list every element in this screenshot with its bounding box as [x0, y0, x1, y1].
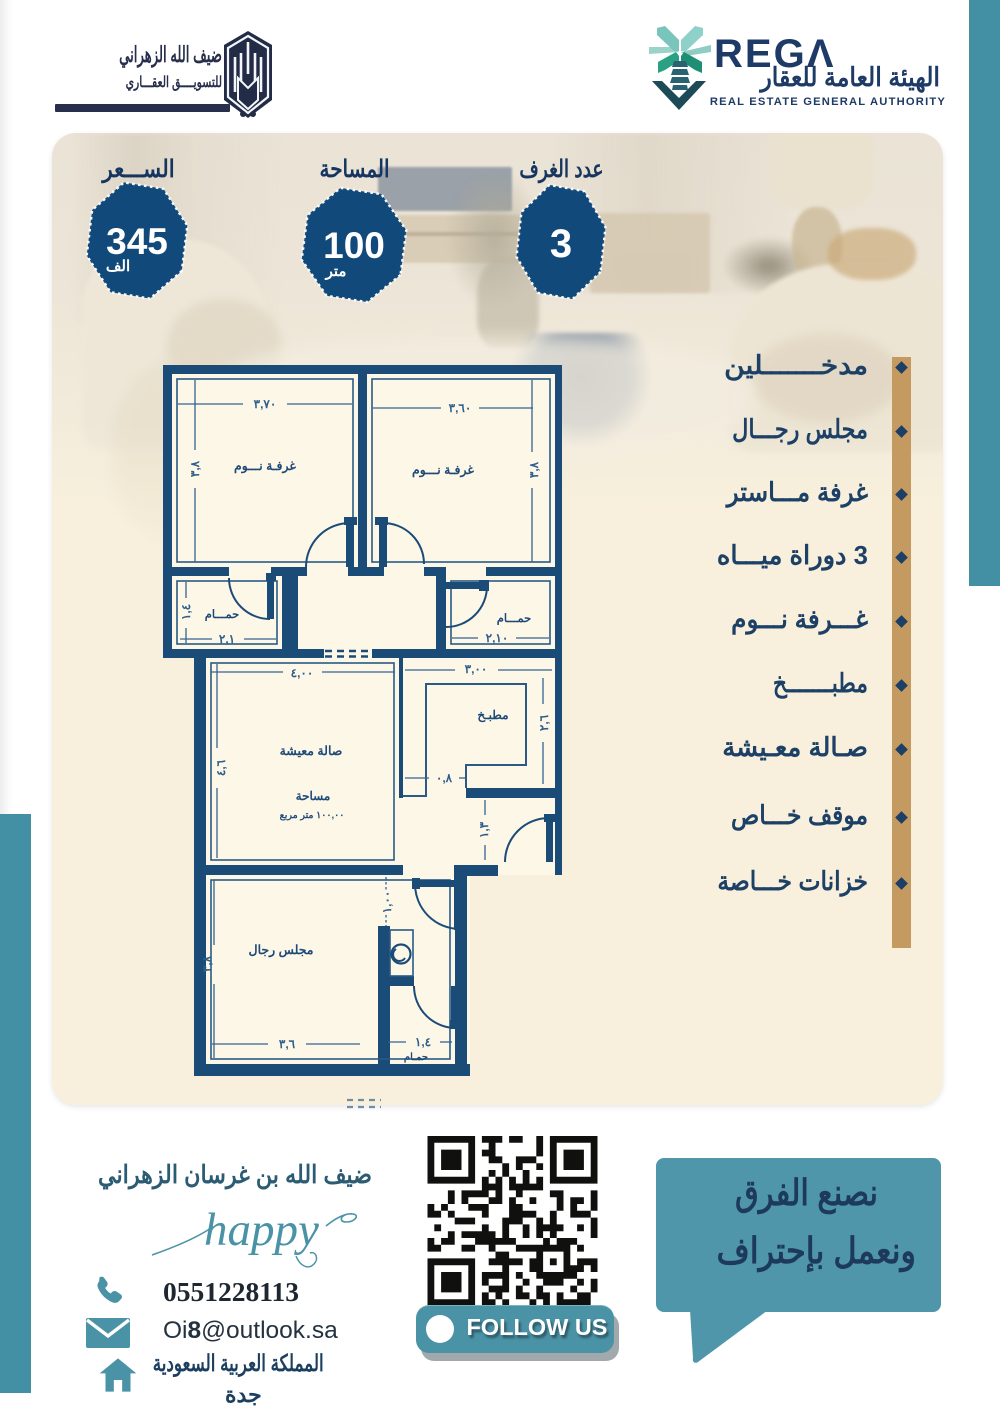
svg-text:١,٤: ١,٤ [179, 604, 193, 620]
svg-text:happy: happy [204, 1204, 319, 1256]
svg-text:٠,٨: ٠,٨ [436, 771, 453, 785]
svg-text:٢,١٠: ٢,١٠ [486, 631, 509, 645]
svg-text:صالة معيشة: صالة معيشة [280, 744, 343, 758]
svg-text:مساحة: مساحة [296, 789, 331, 803]
svg-text:٣,٦٠: ٣,٦٠ [449, 401, 472, 415]
svg-text:متر: متر [325, 263, 347, 280]
svg-text:٣,٨: ٣,٨ [527, 461, 541, 478]
svg-text:٣,٨: ٣,٨ [188, 460, 202, 477]
svg-text:حمـــام: حمـــام [497, 612, 532, 626]
svg-text:٢,٦: ٢,٦ [537, 714, 551, 731]
svg-text:الف: الف [106, 258, 130, 275]
svg-text:3: 3 [550, 222, 572, 266]
svg-text:٣,٠٠: ٣,٠٠ [465, 662, 488, 676]
svg-text:٣,٨: ٣,٨ [200, 955, 214, 972]
svg-text:١,٠٠: ١,٠٠ [380, 891, 394, 914]
svg-text:٤,٠٠: ٤,٠٠ [291, 666, 314, 680]
svg-text:حمـام: حمـام [404, 1052, 428, 1063]
svg-text:٣,٦: ٣,٦ [279, 1037, 296, 1051]
svg-text:٤,٦: ٤,٦ [214, 759, 228, 776]
svg-text:100: 100 [323, 225, 385, 266]
svg-text:١,٤: ١,٤ [415, 1035, 431, 1049]
svg-text:١٠٠,٠٠ متر مربع: ١٠٠,٠٠ متر مربع [280, 810, 345, 821]
svg-text:مطبـخ: مطبـخ [477, 708, 508, 723]
svg-text:345: 345 [106, 221, 168, 262]
svg-text:٣,٧٠: ٣,٧٠ [254, 397, 277, 411]
svg-text:حمـــام: حمـــام [205, 608, 240, 622]
svg-text:مجلس رجال: مجلس رجال [249, 943, 314, 958]
svg-text:غرفـة نـــوم: غرفـة نـــوم [412, 463, 474, 478]
svg-text:غرفـة نـــوم: غرفـة نـــوم [234, 459, 296, 474]
svg-text:١,٣: ١,٣ [477, 821, 491, 838]
svg-text:٢,١: ٢,١ [219, 632, 235, 646]
